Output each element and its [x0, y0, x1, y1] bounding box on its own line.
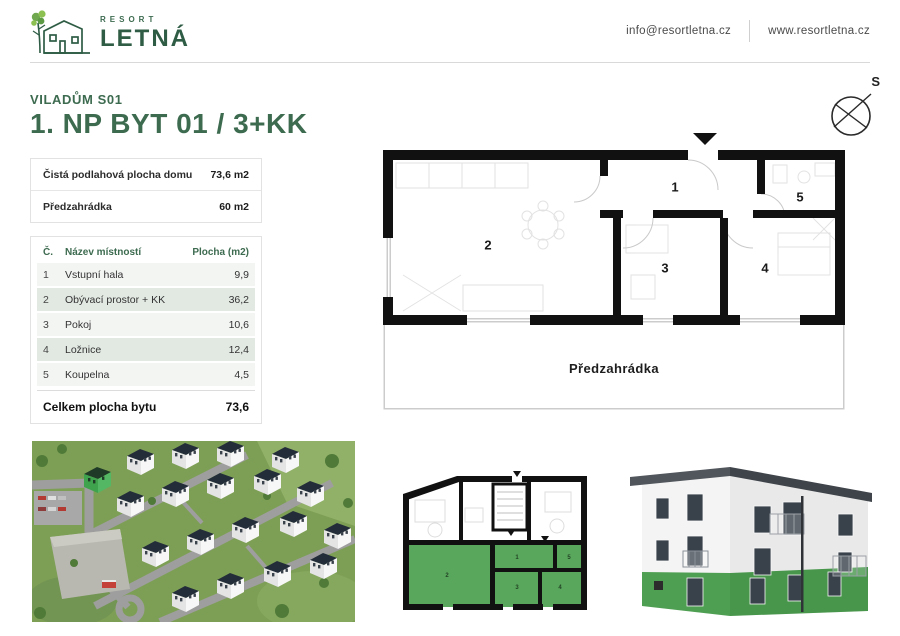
contact-divider — [749, 20, 750, 42]
resort-letna-logo-icon — [30, 9, 92, 55]
mini-room-label-1: 1 — [515, 555, 518, 561]
header-name: Název místností — [65, 247, 192, 258]
rooms-table-body: 1 Vstupní hala 9,9 2 Obývací prostor + K… — [37, 263, 255, 386]
plan-room-label-2: 2 — [484, 238, 491, 253]
miniplan-icon — [395, 468, 598, 620]
room-area: 10,6 — [229, 319, 249, 331]
table-row: 1 Vstupní hala 9,9 — [37, 263, 255, 286]
room-name: Ložnice — [65, 344, 229, 356]
room-area: 36,2 — [229, 294, 249, 306]
building-render-icon — [628, 452, 878, 620]
summary-label: Čistá podlahová plocha domu — [43, 169, 192, 181]
room-name: Obývací prostor + KK — [65, 294, 229, 306]
mini-room-label-4: 4 — [558, 585, 561, 591]
header-num: Č. — [43, 247, 65, 258]
room-num: 1 — [43, 269, 65, 281]
table-row: 2 Obývací prostor + KK 36,2 — [37, 288, 255, 311]
total-label: Celkem plocha bytu — [43, 400, 156, 414]
page-title: 1. NP BYT 01 / 3+KK — [30, 108, 307, 140]
mini-room-label-3: 3 — [515, 585, 518, 591]
rooms-table: Č. Název místností Plocha (m2) 1 Vstupní… — [30, 236, 262, 424]
compass-north-label: S — [871, 74, 880, 89]
room-area: 9,9 — [234, 269, 249, 281]
rooms-table-header: Č. Název místností Plocha (m2) — [37, 241, 255, 263]
summary-value: 60 m2 — [219, 201, 249, 213]
room-num: 4 — [43, 344, 65, 356]
total-value: 73,6 — [226, 400, 249, 414]
summary-value: 73,6 m2 — [210, 169, 249, 181]
website-link[interactable]: www.resortletna.cz — [768, 25, 870, 37]
aerial-render-icon — [32, 441, 355, 622]
room-name: Pokoj — [65, 319, 229, 331]
floorplan: 1 2 3 4 5 Předzahrádka — [383, 125, 845, 410]
garden-label: Předzahrádka — [383, 361, 845, 376]
brand-name-main: LETNÁ — [100, 27, 190, 51]
header: RESORT LETNÁ info@resortletna.cz www.res… — [0, 0, 900, 62]
table-row: 5 Koupelna 4,5 — [37, 363, 255, 386]
mini-room-label-5: 5 — [567, 555, 570, 561]
header-divider — [30, 62, 870, 63]
aerial-render-image — [32, 441, 355, 622]
header-area: Plocha (m2) — [192, 247, 249, 258]
rooms-total-row: Celkem plocha bytu 73,6 — [37, 390, 255, 423]
summary-row-floor-area: Čistá podlahová plocha domu 73,6 m2 — [31, 159, 261, 190]
summary-row-garden: Předzahrádka 60 m2 — [31, 190, 261, 222]
room-num: 5 — [43, 369, 65, 381]
brand-name-top: RESORT — [100, 16, 190, 24]
building-subtitle: VILADŮM S01 — [30, 92, 123, 107]
plan-room-label-3: 3 — [661, 261, 668, 276]
house-icon — [44, 21, 90, 53]
brand-name: RESORT LETNÁ — [100, 16, 190, 55]
building-render-image — [628, 452, 878, 620]
mini-room-label-2: 2 — [445, 573, 448, 579]
summary-label: Předzahrádka — [43, 201, 112, 213]
email-link[interactable]: info@resortletna.cz — [626, 25, 731, 37]
room-area: 4,5 — [234, 369, 249, 381]
table-row: 3 Pokoj 10,6 — [37, 313, 255, 336]
plan-room-label-5: 5 — [796, 190, 803, 205]
room-name: Koupelna — [65, 369, 234, 381]
summary-box: Čistá podlahová plocha domu 73,6 m2 Před… — [30, 158, 262, 223]
plan-room-label-1: 1 — [671, 180, 678, 195]
room-area: 12,4 — [229, 344, 249, 356]
brand-logo: RESORT LETNÁ — [30, 9, 190, 55]
room-num: 2 — [43, 294, 65, 306]
miniplan-image: 1 2 3 4 5 — [395, 468, 598, 620]
plan-room-label-4: 4 — [761, 261, 768, 276]
room-num: 3 — [43, 319, 65, 331]
room-name: Vstupní hala — [65, 269, 234, 281]
header-contacts: info@resortletna.cz www.resortletna.cz — [626, 0, 870, 62]
table-row: 4 Ložnice 12,4 — [37, 338, 255, 361]
